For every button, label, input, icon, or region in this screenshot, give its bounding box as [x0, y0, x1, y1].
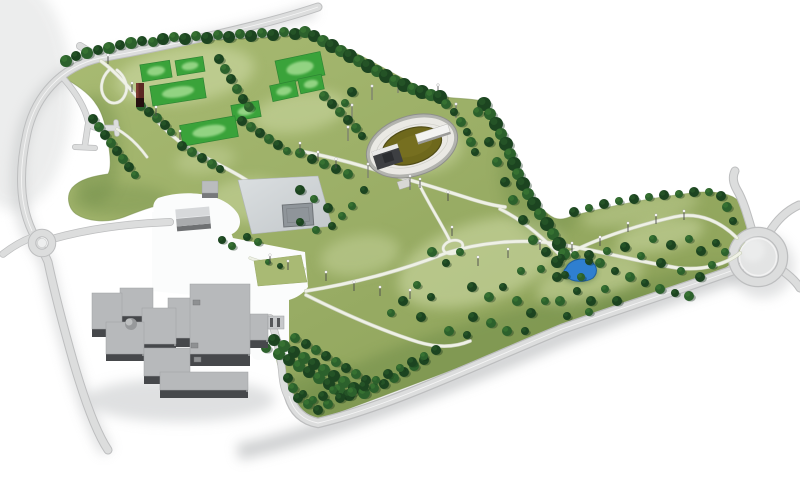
tree-highlight — [474, 108, 479, 113]
tree-highlight — [553, 238, 560, 245]
tree-highlight — [690, 188, 695, 193]
tree-highlight — [487, 319, 492, 324]
tree-highlight — [312, 346, 317, 351]
tree-highlight — [527, 309, 532, 314]
tree-highlight — [408, 358, 413, 363]
tree-highlight — [284, 374, 289, 379]
tree-highlight — [503, 327, 508, 332]
roundabout-east — [733, 232, 783, 282]
tree-highlight — [320, 160, 325, 165]
tree-highlight — [126, 38, 132, 44]
tree-highlight — [344, 116, 349, 121]
roundabout-island — [37, 238, 46, 247]
tree-highlight — [329, 223, 333, 227]
tree-highlight — [221, 65, 226, 70]
tree-highlight — [451, 109, 455, 113]
site-plan-illustration — [0, 0, 800, 484]
tree-highlight — [113, 147, 118, 152]
tree-highlight — [313, 227, 317, 231]
tree-highlight — [416, 86, 423, 93]
tree-highlight — [208, 160, 213, 165]
tree-highlight — [168, 129, 172, 133]
lamp-head — [179, 130, 182, 133]
tree-highlight — [326, 40, 333, 47]
lamp-head — [409, 289, 412, 292]
tree-highlight — [518, 268, 522, 272]
tree-highlight — [227, 75, 232, 80]
tree-highlight — [585, 251, 590, 256]
tree-highlight — [297, 219, 301, 223]
tree-highlight — [428, 294, 432, 298]
tree-highlight — [279, 341, 285, 347]
tree-highlight — [119, 155, 124, 160]
tree-highlight — [132, 172, 136, 176]
lamp-head — [107, 54, 110, 57]
tree-highlight — [224, 32, 230, 38]
tree-highlight — [388, 310, 392, 314]
tree-highlight — [656, 285, 661, 290]
tree-highlight — [330, 387, 334, 391]
tree-highlight — [421, 353, 425, 357]
lamp-head — [317, 151, 320, 154]
tree-highlight — [517, 178, 524, 185]
tree-highlight — [485, 138, 490, 143]
tree-highlight — [319, 365, 325, 371]
tree-highlight — [586, 205, 590, 209]
lamp-head — [379, 286, 382, 289]
tree-highlight — [362, 60, 369, 67]
tree-highlight — [217, 166, 221, 170]
tree-highlight — [304, 367, 310, 373]
lamp-head — [325, 271, 328, 274]
tree-highlight — [467, 138, 472, 143]
tree-highlight — [138, 37, 143, 42]
building-roof — [106, 322, 144, 354]
building-side — [160, 389, 248, 398]
tree-highlight — [329, 371, 335, 377]
tree-highlight — [616, 198, 620, 202]
tree-highlight — [469, 313, 474, 318]
tree-highlight — [706, 189, 710, 193]
tree-highlight — [500, 284, 504, 288]
tree-highlight — [344, 50, 351, 57]
tree-highlight — [604, 248, 608, 252]
red-brick-building — [136, 83, 144, 107]
tree-highlight — [500, 138, 507, 145]
tree-highlight — [153, 114, 158, 119]
tree-highlight — [89, 115, 94, 120]
tree-highlight — [478, 98, 485, 105]
floodlight-head — [347, 126, 350, 129]
tree-highlight — [82, 48, 88, 54]
tree-highlight — [308, 155, 313, 160]
tree-highlight — [278, 263, 281, 266]
lamp-head — [155, 106, 158, 109]
tree-highlight — [621, 243, 626, 248]
roof-vent — [194, 357, 201, 362]
floodlight-head — [351, 104, 354, 107]
tree-highlight — [348, 88, 353, 93]
tree-highlight — [556, 297, 561, 302]
lamp-head — [269, 254, 272, 257]
tree-highlight — [359, 133, 363, 137]
tree-highlight — [324, 379, 330, 385]
tree-highlight — [528, 198, 535, 205]
tree-highlight — [289, 347, 295, 353]
lamp-head — [419, 178, 422, 181]
building-side — [250, 339, 268, 348]
parking-stub — [85, 125, 88, 145]
tree-highlight — [266, 259, 269, 262]
tree-highlight — [678, 268, 682, 272]
tree-highlight — [559, 249, 565, 255]
tree-highlight — [342, 100, 346, 104]
tree-highlight — [713, 240, 717, 244]
tree-highlight — [485, 109, 491, 115]
lamp-head — [539, 240, 542, 243]
tree-highlight — [178, 142, 183, 147]
tree-highlight — [188, 148, 193, 153]
tree-highlight — [408, 84, 414, 90]
tree-highlight — [548, 229, 554, 235]
tree-highlight — [239, 95, 244, 100]
tree-highlight — [657, 259, 662, 264]
tree-highlight — [318, 36, 324, 42]
tree-highlight — [426, 90, 432, 96]
tree-highlight — [578, 274, 582, 278]
tree-highlight — [626, 273, 631, 278]
lamp-head — [571, 242, 574, 245]
tree-highlight — [468, 283, 473, 288]
tree-highlight — [442, 100, 447, 105]
tree-highlight — [258, 29, 263, 34]
tree-highlight — [457, 118, 462, 123]
tree-highlight — [417, 313, 422, 318]
tree-highlight — [324, 204, 329, 209]
tree-highlight — [219, 237, 223, 241]
floodlight-head — [409, 175, 412, 178]
tree-highlight — [302, 340, 307, 345]
tree-highlight — [94, 46, 99, 51]
tree-highlight — [247, 123, 252, 128]
tree-highlight — [161, 121, 166, 126]
tree-highlight — [125, 163, 130, 168]
tree-highlight — [336, 108, 341, 113]
tree-highlight — [709, 262, 713, 266]
tree-highlight — [398, 79, 405, 86]
lamp-head — [477, 256, 480, 259]
tree-highlight — [332, 358, 337, 363]
tree-highlight — [472, 149, 476, 153]
tree-highlight — [722, 249, 726, 253]
lamp-head — [451, 226, 454, 229]
tree-highlight — [519, 216, 524, 221]
tree-highlight — [464, 332, 468, 336]
tree-highlight — [214, 31, 219, 36]
building-roof — [142, 308, 176, 344]
entrance-stripe — [277, 318, 280, 327]
tree-highlight — [336, 394, 341, 399]
tree-highlight — [72, 52, 77, 57]
tree-highlight — [602, 286, 606, 290]
lamp-head — [287, 260, 290, 263]
tree-highlight — [107, 139, 112, 144]
tree-highlight — [215, 55, 220, 60]
tree-highlight — [294, 394, 299, 399]
lamp-head — [655, 214, 658, 217]
tree-highlight — [685, 292, 690, 297]
tree-highlight — [697, 247, 702, 252]
tree-highlight — [284, 148, 288, 152]
sports-hall — [175, 207, 211, 232]
tree-highlight — [538, 266, 542, 270]
roof-dome-highlight — [126, 319, 133, 326]
tree-highlight — [116, 41, 121, 46]
tree-highlight — [372, 66, 378, 72]
tree-highlight — [95, 123, 100, 128]
tree-highlight — [390, 76, 396, 82]
tree-highlight — [513, 297, 518, 302]
tree-highlight — [274, 349, 280, 355]
tree-highlight — [299, 353, 305, 359]
tree-highlight — [672, 290, 676, 294]
tree-highlight — [553, 273, 558, 278]
tree-highlight — [613, 297, 618, 302]
tree-highlight — [428, 248, 433, 253]
tree-highlight — [529, 236, 534, 241]
tree-highlight — [570, 208, 575, 213]
tree-highlight — [397, 365, 401, 369]
lamp-head — [299, 142, 302, 145]
tree-highlight — [269, 335, 275, 341]
tree-highlight — [314, 406, 319, 411]
tree-highlight — [309, 31, 315, 37]
tree-highlight — [667, 241, 672, 246]
tree-highlight — [723, 203, 728, 208]
tree-highlight — [445, 327, 450, 332]
tree-highlight — [202, 33, 208, 39]
tree-highlight — [542, 298, 546, 302]
tree-highlight — [352, 124, 357, 129]
tree-highlight — [233, 85, 238, 90]
tree-highlight — [265, 135, 270, 140]
tree-highlight — [414, 282, 418, 286]
tree-highlight — [348, 388, 353, 393]
tree-highlight — [339, 213, 343, 217]
tree-highlight — [180, 34, 186, 40]
parking-bar — [75, 147, 95, 148]
tree-highlight — [336, 46, 342, 52]
tree-highlight — [360, 382, 365, 387]
tree-highlight — [280, 28, 285, 33]
tree-highlight — [646, 194, 650, 198]
tree-highlight — [501, 178, 506, 183]
tree-highlight — [432, 346, 437, 351]
tree-highlight — [310, 397, 314, 401]
tree-highlight — [541, 218, 548, 225]
lamp-head — [507, 248, 510, 251]
tree-highlight — [300, 391, 304, 395]
tree-highlight — [255, 239, 259, 243]
tree-highlight — [630, 195, 635, 200]
tree-highlight — [457, 249, 461, 253]
tree-highlight — [493, 158, 498, 163]
tree-highlight — [284, 355, 290, 361]
building-roof — [250, 314, 268, 340]
floodlight-head — [455, 103, 458, 106]
tree-highlight — [339, 377, 345, 383]
building-roof — [160, 372, 248, 390]
tree-highlight — [686, 236, 690, 240]
tree-highlight — [290, 29, 296, 35]
tree-highlight — [509, 196, 514, 201]
tree-highlight — [535, 209, 541, 215]
tree-highlight — [238, 117, 243, 122]
tree-highlight — [730, 218, 734, 222]
floodlight-head — [371, 85, 374, 88]
tree-highlight — [149, 38, 154, 43]
tree-highlight — [505, 149, 511, 155]
tree-highlight — [373, 377, 377, 381]
tree-highlight — [572, 252, 576, 256]
tree-highlight — [660, 191, 665, 196]
tree-highlight — [192, 32, 197, 37]
tree-highlight — [236, 30, 241, 35]
tree-highlight — [291, 334, 296, 339]
floodlight-head — [437, 84, 440, 87]
tree-highlight — [562, 272, 566, 276]
tree-highlight — [104, 43, 110, 49]
tree-highlight — [384, 370, 389, 375]
tree-highlight — [490, 118, 497, 125]
tree-highlight — [322, 352, 327, 357]
tree-highlight — [600, 200, 605, 205]
tree-highlight — [245, 103, 250, 108]
tree-highlight — [650, 236, 654, 240]
tree-highlight — [246, 31, 252, 37]
tree-highlight — [361, 187, 365, 191]
tree-highlight — [380, 70, 387, 77]
lamp-head — [683, 210, 686, 213]
tree-highlight — [304, 400, 309, 405]
tree-highlight — [244, 234, 248, 238]
tree-highlight — [485, 293, 490, 298]
tree-highlight — [296, 186, 301, 191]
tree-highlight — [309, 359, 315, 365]
tree-highlight — [587, 297, 592, 302]
tree-highlight — [311, 196, 315, 200]
lamp-head — [353, 281, 356, 284]
tree-highlight — [558, 255, 562, 259]
tree-highlight — [320, 92, 325, 97]
tree-highlight — [362, 376, 367, 381]
tree-highlight — [354, 56, 360, 62]
tree-highlight — [198, 154, 203, 159]
tree-highlight — [289, 384, 294, 389]
entrance-stripe — [270, 318, 273, 327]
tree-highlight — [399, 297, 404, 302]
lamp-head — [335, 158, 338, 161]
tree-highlight — [342, 364, 347, 369]
building-roof — [190, 284, 250, 354]
tree-highlight — [145, 108, 150, 113]
tree-highlight — [314, 373, 320, 379]
tree-highlight — [642, 280, 646, 284]
tree-highlight — [596, 259, 601, 264]
tree-highlight — [328, 100, 333, 105]
tree-highlight — [496, 129, 502, 135]
floodlight-head — [367, 163, 370, 166]
roof-vent — [191, 343, 198, 348]
site-plan-page — [0, 0, 800, 484]
tree-highlight — [586, 309, 590, 313]
tree-highlight — [158, 34, 164, 40]
roof-vent — [193, 300, 200, 305]
tree-highlight — [101, 131, 106, 136]
lamp-head — [131, 82, 134, 85]
roundabout-west — [32, 233, 52, 253]
tree-highlight — [229, 243, 233, 247]
small-building — [202, 181, 218, 198]
tree-highlight — [612, 268, 616, 272]
tree-highlight — [443, 260, 447, 264]
tree-highlight — [61, 56, 67, 62]
tree-highlight — [300, 27, 306, 33]
tree-highlight — [717, 192, 722, 197]
tree-highlight — [676, 191, 680, 195]
tree-highlight — [522, 328, 526, 332]
tree-highlight — [349, 203, 353, 207]
tree-highlight — [170, 33, 175, 38]
lamp-head — [447, 191, 450, 194]
tree-highlight — [294, 361, 300, 367]
island-highlight — [741, 238, 765, 262]
tree-highlight — [464, 129, 468, 133]
tree-highlight — [638, 253, 642, 257]
tree-highlight — [513, 169, 519, 175]
tree-highlight — [508, 158, 515, 165]
tree-highlight — [696, 273, 701, 278]
lamp-head — [627, 222, 630, 225]
tree-highlight — [268, 30, 274, 36]
tree-highlight — [542, 248, 547, 253]
tree-highlight — [434, 91, 441, 98]
tree-highlight — [319, 392, 324, 397]
tree-highlight — [274, 141, 279, 146]
tree-highlight — [564, 313, 568, 317]
tree-highlight — [352, 370, 357, 375]
tree-highlight — [344, 170, 349, 175]
tree-highlight — [574, 288, 578, 292]
tree-highlight — [523, 189, 529, 195]
lamp-head — [599, 236, 602, 239]
tree-highlight — [256, 129, 261, 134]
